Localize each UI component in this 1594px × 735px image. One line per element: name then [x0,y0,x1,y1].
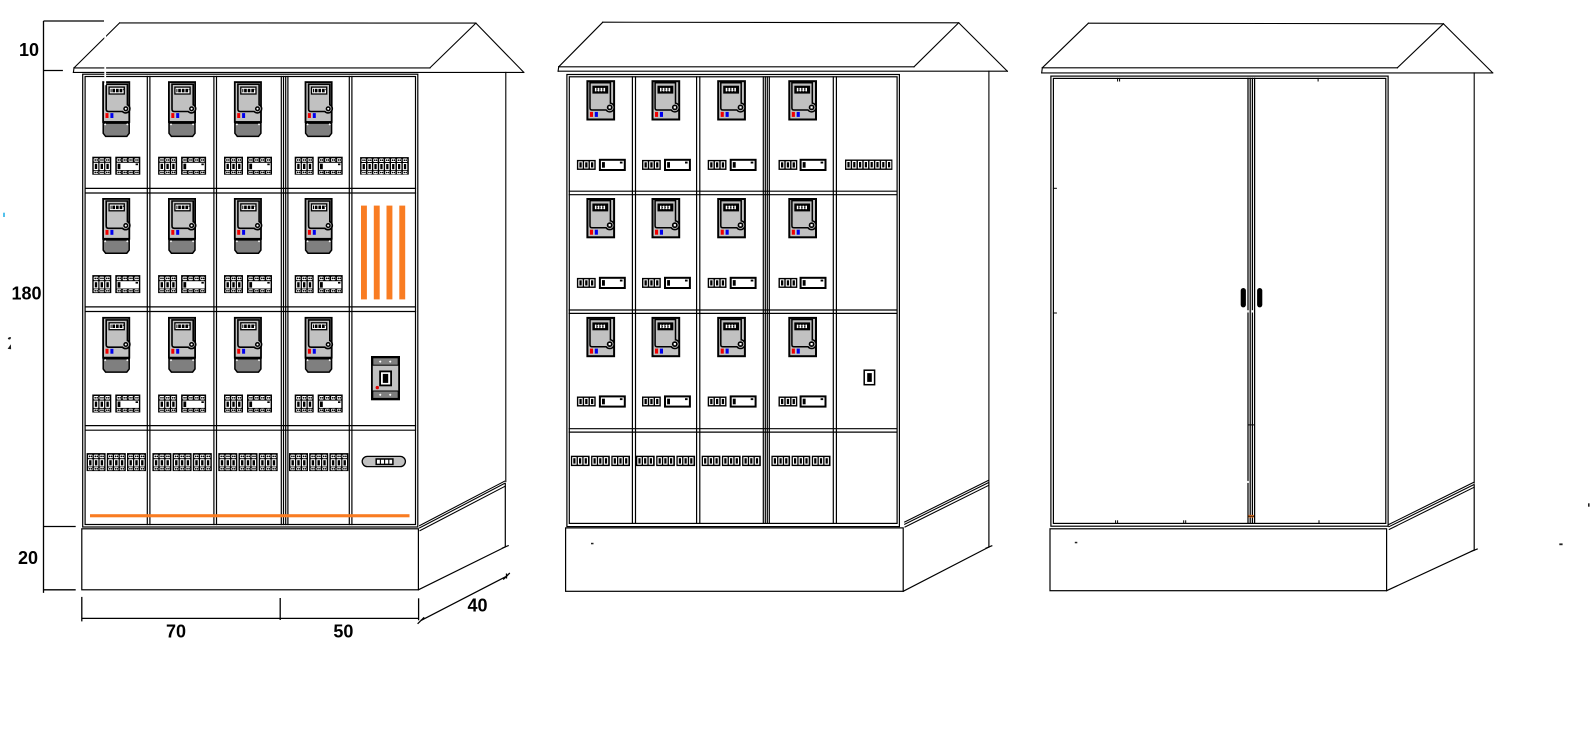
svg-text:40: 40 [467,596,487,616]
svg-text:180: 180 [11,284,41,304]
svg-text:20: 20 [18,548,38,568]
svg-text:10: 10 [19,40,39,60]
svg-text:70: 70 [166,622,186,642]
svg-text:50: 50 [333,622,353,642]
